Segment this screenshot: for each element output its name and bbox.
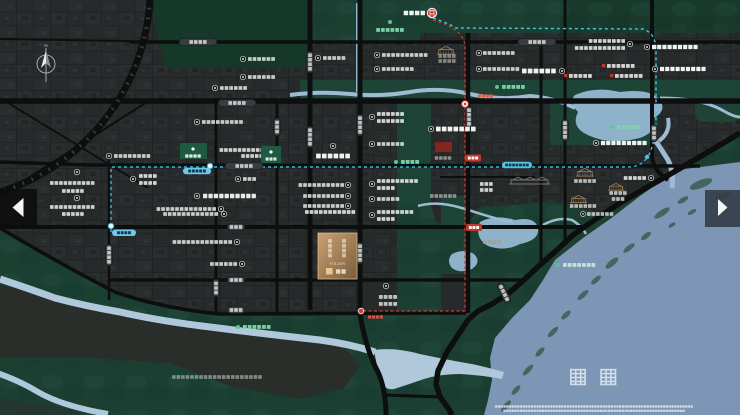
svg-text:N: N xyxy=(44,43,47,48)
svg-text:FISJOR: FISJOR xyxy=(330,262,346,266)
